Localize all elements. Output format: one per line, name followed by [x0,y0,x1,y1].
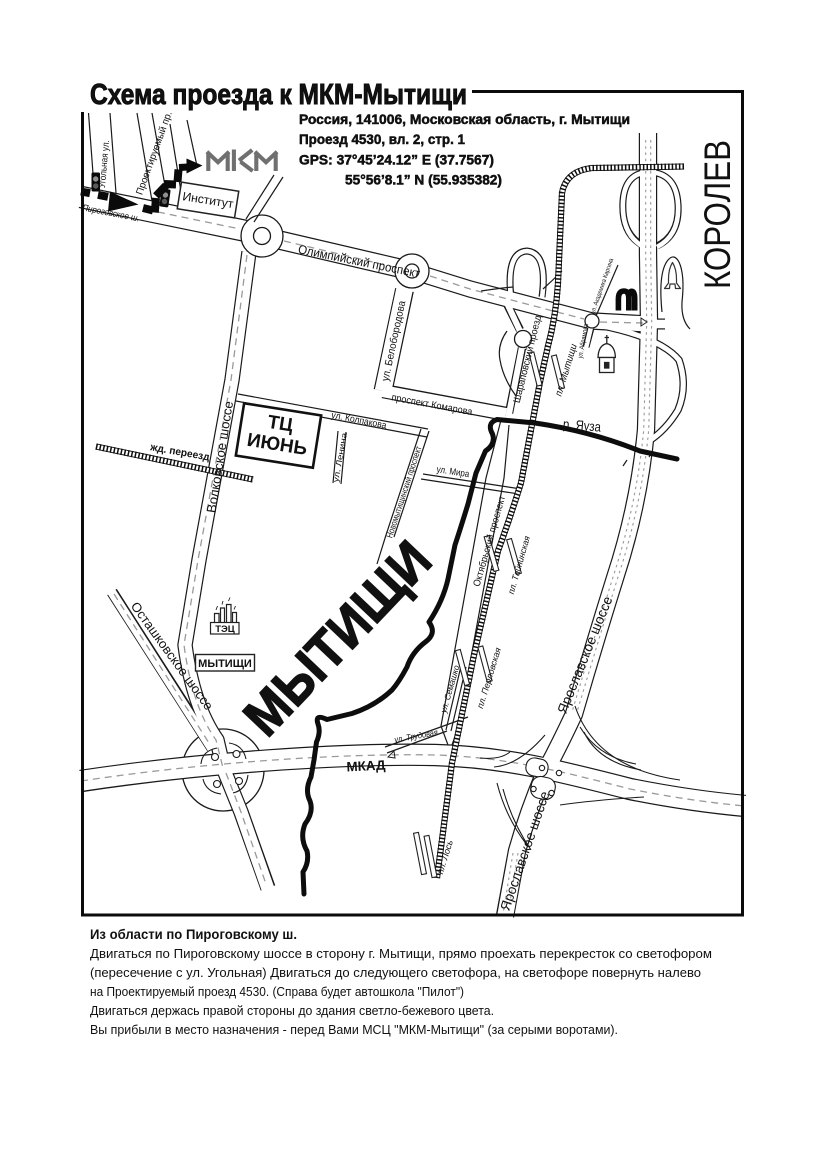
svg-text:Из области по Пироговскому ш.: Из области по Пироговскому ш. [90,927,297,942]
svg-text:Двигаться по Пироговскому шосс: Двигаться по Пироговскому шоссе в сторон… [90,946,712,961]
svg-text:Россия, 141006, Московская обл: Россия, 141006, Московская область, г. М… [299,111,630,127]
svg-text:55°56’8.1” N (55.935382): 55°56’8.1” N (55.935382) [345,172,502,188]
svg-text:(пересечение с ул. Угольная) Д: (пересечение с ул. Угольная) Двигаться д… [90,965,701,980]
svg-text:Схема проезда к МКМ-Мытищи: Схема проезда к МКМ-Мытищи [90,79,467,111]
svg-text:на Проектируемый проезд 4530.: на Проектируемый проезд 4530. (Справа бу… [90,984,464,999]
svg-text:Проезд 4530, вл. 2, стр. 1: Проезд 4530, вл. 2, стр. 1 [299,131,465,147]
svg-text:ТЭЦ: ТЭЦ [215,624,235,635]
svg-text:МЫТИЩИ: МЫТИЩИ [198,658,252,670]
svg-text:МКАД: МКАД [346,757,386,774]
svg-text:Двигаться держась правой сторо: Двигаться держась правой стороны до здан… [90,1003,494,1018]
svg-text:Вы прибыли в место назначения: Вы прибыли в место назначения - перед Ва… [90,1022,618,1037]
svg-text:КОРОЛЕВ: КОРОЛЕВ [697,140,738,289]
svg-text:GPS: 37°45’24.12” E (37.7567): GPS: 37°45’24.12” E (37.7567) [299,152,494,168]
